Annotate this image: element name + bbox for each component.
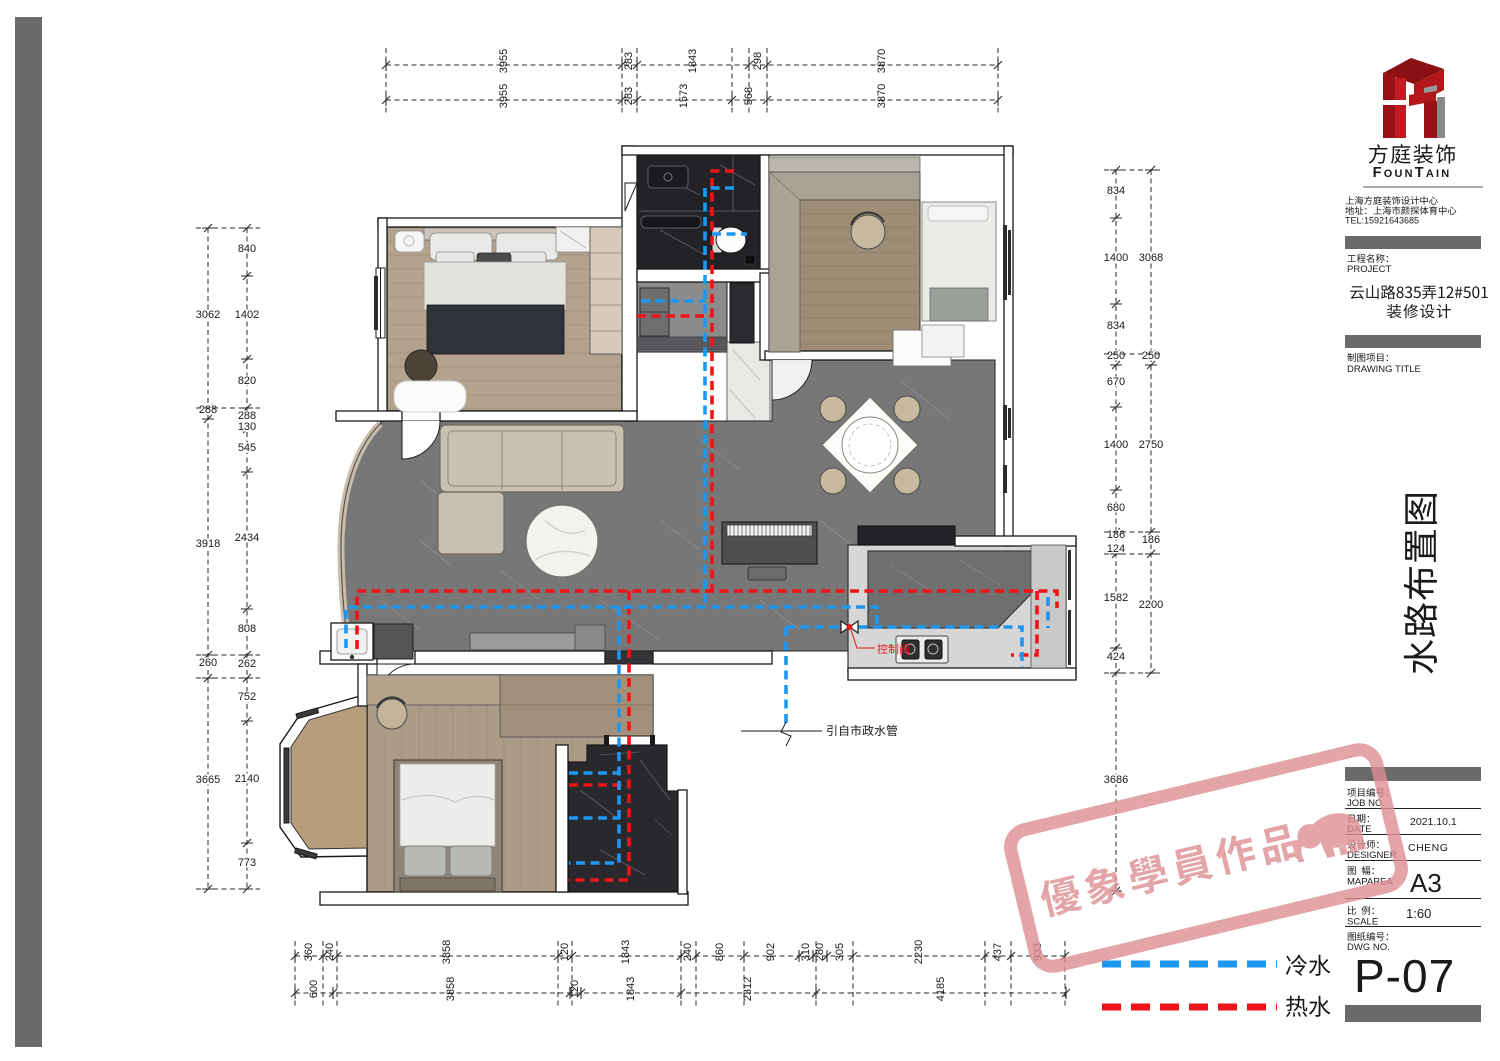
svg-text:124: 124 (1107, 543, 1125, 555)
svg-text:P-07: P-07 (1354, 950, 1455, 1002)
svg-text:2750: 2750 (1139, 439, 1163, 451)
svg-text:FOUNTAIN: FOUNTAIN (1373, 165, 1452, 181)
svg-text:545: 545 (238, 442, 256, 454)
svg-text:283: 283 (623, 52, 635, 70)
svg-text:2434: 2434 (235, 532, 259, 544)
svg-text:860: 860 (714, 943, 726, 961)
svg-text:260: 260 (199, 657, 217, 669)
svg-text:834: 834 (1107, 320, 1125, 332)
svg-text:240: 240 (682, 943, 694, 961)
svg-text:186: 186 (1107, 529, 1125, 541)
svg-text:2200: 2200 (1139, 599, 1163, 611)
svg-text:3918: 3918 (196, 538, 220, 550)
svg-text:1400: 1400 (1104, 252, 1128, 264)
svg-text:3870: 3870 (876, 84, 888, 108)
svg-text:1:60: 1:60 (1406, 906, 1431, 921)
svg-text:CHENG: CHENG (1408, 842, 1448, 854)
svg-text:1582: 1582 (1104, 592, 1128, 604)
svg-text:PROJECT: PROJECT (1347, 264, 1392, 275)
svg-text:424: 424 (1107, 651, 1125, 663)
svg-text:3955: 3955 (498, 49, 510, 73)
svg-text:250: 250 (1107, 350, 1125, 362)
svg-text:1843: 1843 (625, 977, 637, 1001)
svg-text:773: 773 (238, 857, 256, 869)
svg-text:1573: 1573 (678, 84, 690, 108)
svg-text:2021.10.1: 2021.10.1 (1410, 816, 1457, 828)
svg-text:902: 902 (765, 943, 777, 961)
svg-text:4185: 4185 (935, 977, 947, 1001)
svg-text:2312: 2312 (742, 977, 754, 1001)
svg-text:670: 670 (1107, 376, 1125, 388)
svg-text:3858: 3858 (445, 977, 457, 1001)
svg-text:1843: 1843 (620, 940, 632, 964)
svg-text:3062: 3062 (196, 309, 220, 321)
svg-text:240: 240 (324, 943, 336, 961)
svg-text:DRAWING TITLE: DRAWING TITLE (1347, 364, 1421, 375)
svg-text:1402: 1402 (235, 309, 259, 321)
svg-text:262: 262 (238, 658, 256, 670)
svg-text:840: 840 (238, 243, 256, 255)
svg-text:3665: 3665 (196, 774, 220, 786)
svg-text:834: 834 (1107, 185, 1125, 197)
svg-text:3686: 3686 (1104, 774, 1128, 786)
svg-text:310: 310 (800, 943, 812, 961)
svg-text:600: 600 (308, 980, 320, 998)
svg-text:2230: 2230 (913, 940, 925, 964)
svg-text:305: 305 (834, 943, 846, 961)
svg-text:3858: 3858 (441, 940, 453, 964)
svg-text:120: 120 (559, 943, 571, 961)
svg-text:SCALE: SCALE (1347, 917, 1378, 928)
svg-text:1843: 1843 (687, 49, 699, 73)
svg-text:288: 288 (199, 404, 217, 416)
svg-text:437: 437 (992, 943, 1004, 961)
svg-text:3870: 3870 (876, 49, 888, 73)
svg-text:680: 680 (1107, 502, 1125, 514)
svg-text:1400: 1400 (1104, 439, 1128, 451)
svg-text:820: 820 (238, 375, 256, 387)
svg-text:A3: A3 (1410, 868, 1442, 898)
svg-text:298: 298 (752, 52, 764, 70)
svg-text:250: 250 (1142, 350, 1160, 362)
svg-text:TEL:15921643685: TEL:15921643685 (1345, 216, 1419, 226)
svg-text:3068: 3068 (1139, 252, 1163, 264)
svg-text:752: 752 (238, 691, 256, 703)
svg-text:3955: 3955 (498, 84, 510, 108)
svg-text:130: 130 (238, 421, 256, 433)
svg-text:2140: 2140 (235, 773, 259, 785)
svg-text:120: 120 (569, 980, 581, 998)
svg-text:186: 186 (1142, 534, 1160, 546)
svg-text:360: 360 (303, 943, 315, 961)
svg-text:808: 808 (238, 623, 256, 635)
svg-text:283: 283 (623, 87, 635, 105)
